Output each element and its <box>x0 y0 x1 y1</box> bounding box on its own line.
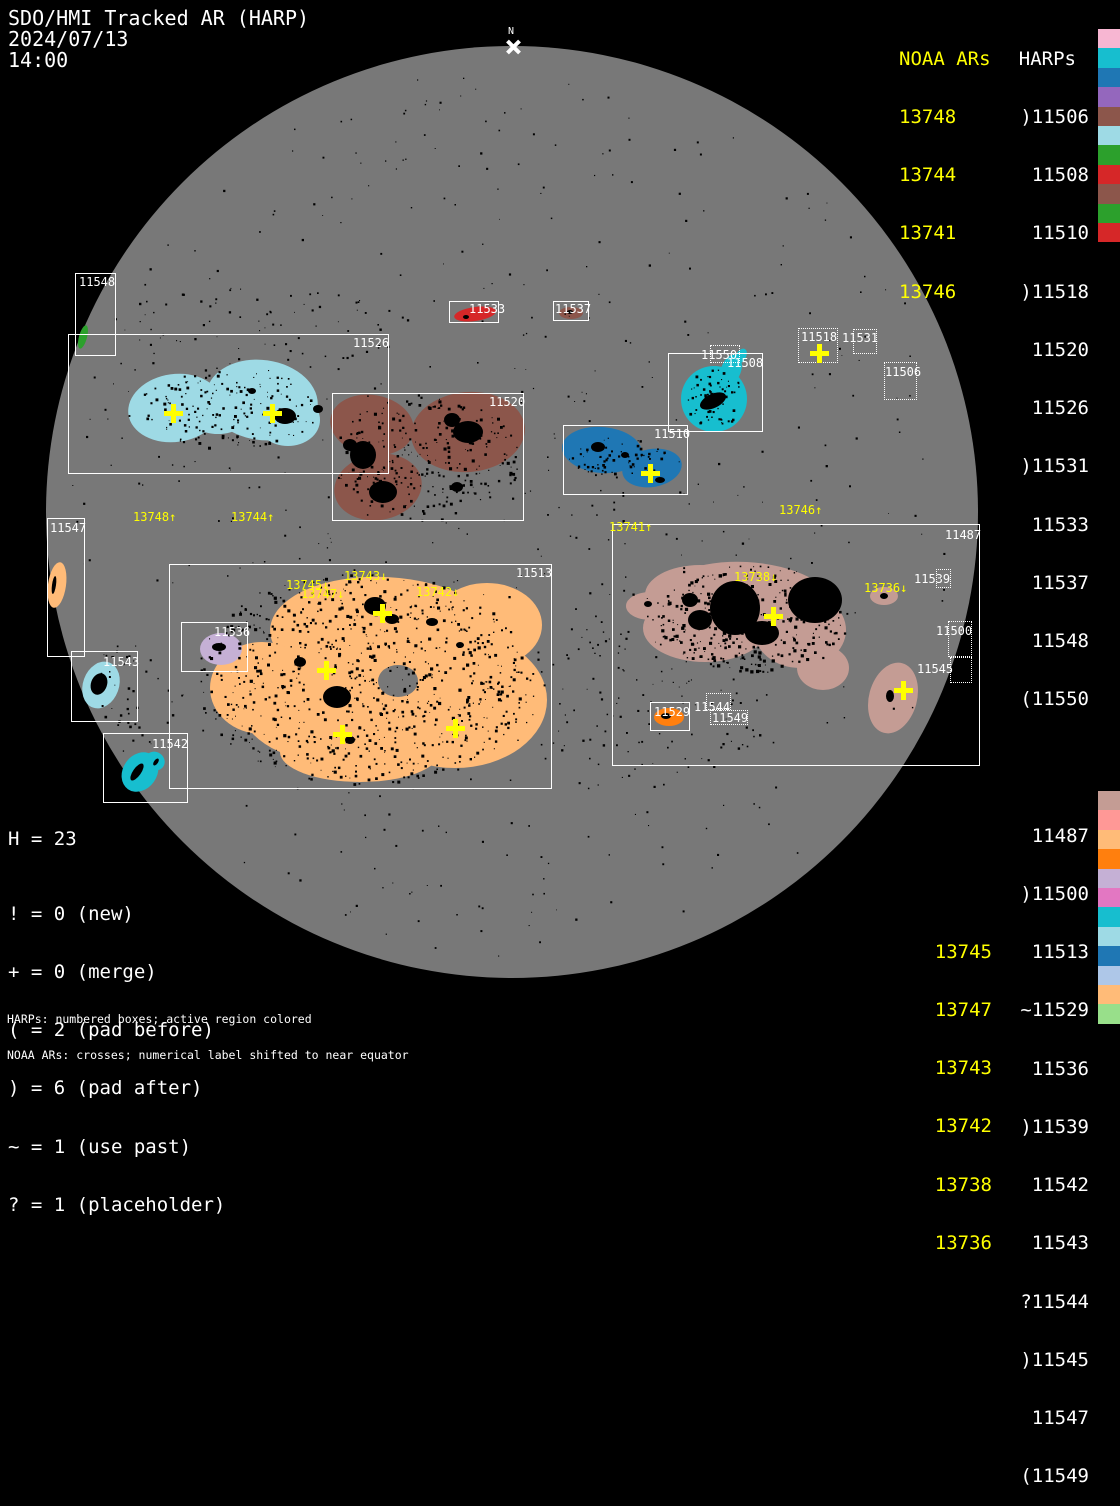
color-swatch <box>1098 946 1120 965</box>
harp-box-label: 11547 <box>50 522 86 534</box>
noaa-cross-icon <box>333 725 352 744</box>
legend-harp-item: 11543 <box>993 1234 1089 1253</box>
legend-harp-item: )11500 <box>993 885 1089 904</box>
noaa-cross-icon <box>317 661 336 680</box>
legend-noaa-item: 13738 <box>899 1176 992 1195</box>
footnote-noaa: NOAA ARs: crosses; numerical label shift… <box>7 1049 409 1061</box>
noaa-cross-icon <box>373 604 392 623</box>
color-swatch <box>1098 48 1120 67</box>
harp-box-11520 <box>332 393 524 521</box>
legend-noaa-title: NOAA ARs <box>899 50 991 69</box>
noaa-cross-icon <box>446 719 465 738</box>
legend-harp-item: (11550 <box>993 690 1089 709</box>
legend-noaa-item: 13743 <box>899 1059 992 1078</box>
noaa-cross-icon <box>894 681 913 700</box>
legend-harp-item: 11547 <box>993 1409 1089 1428</box>
harp-count: H = 23 <box>8 830 77 849</box>
harp-box-11487 <box>612 524 980 766</box>
color-swatch <box>1098 907 1120 926</box>
legend-harp-title: HARPs <box>993 50 1089 69</box>
legend-harp-item: 11510 <box>993 224 1089 243</box>
legend-noaa-item: 13746 <box>899 283 991 302</box>
legend-harp-bottom: 11487 )11500 11513 ~11529 11536 )11539 1… <box>993 788 1089 1506</box>
harp-box-label: 11500 <box>936 625 972 637</box>
legend-noaa-item: 13744 <box>899 166 991 185</box>
harp-box-label: 11545 <box>917 663 953 675</box>
legend-harp-item: 11537 <box>993 574 1089 593</box>
legend-harp-item: )11518 <box>993 283 1089 302</box>
color-swatch <box>1098 145 1120 164</box>
noaa-ar-label: 13743↓ <box>344 570 387 582</box>
color-swatch <box>1098 68 1120 87</box>
color-swatch <box>1098 126 1120 145</box>
harp-box-label: 11531 <box>842 332 878 344</box>
legend-harp-item: 11526 <box>993 399 1089 418</box>
legend-harp-top: HARPs )11506 11508 11510 )11518 11520 11… <box>993 11 1089 729</box>
legend-harp-item: )11531 <box>993 457 1089 476</box>
status-line-use-past: ~ = 1 (use past) <box>8 1138 225 1157</box>
legend-noaa-top: NOAA ARs 13748 13744 13741 13746 <box>899 11 991 322</box>
color-swatch <box>1098 223 1120 242</box>
harp-box-label: 11513 <box>516 567 552 579</box>
noaa-cross-icon <box>764 607 783 626</box>
noaa-ar-label: 13747↓ <box>301 588 344 600</box>
noaa-cross-icon <box>263 404 282 423</box>
harp-box-label: 11533 <box>469 303 505 315</box>
noaa-cross-icon <box>641 464 660 483</box>
color-swatch <box>1098 966 1120 985</box>
legend-harp-item: 11536 <box>993 1060 1089 1079</box>
legend-harp-item: )11545 <box>993 1351 1089 1370</box>
harp-box-label: 11539 <box>914 573 950 585</box>
noaa-ar-label: 13744↑ <box>231 511 274 523</box>
color-swatch <box>1098 888 1120 907</box>
harp-box-11545 <box>950 657 972 683</box>
color-swatch <box>1098 87 1120 106</box>
legend-noaa-item: 13748 <box>899 108 991 127</box>
legend-harp-item: 11487 <box>993 827 1089 846</box>
color-swatch <box>1098 165 1120 184</box>
legend-noaa-item: 13736 <box>899 1234 992 1253</box>
noaa-ar-label: 13746↑ <box>779 504 822 516</box>
harp-box-label: 11518 <box>801 331 837 343</box>
harp-box-label: 11549 <box>712 712 748 724</box>
noaa-ar-label: 13741↑ <box>609 521 652 533</box>
legend-harp-item: )11506 <box>993 108 1089 127</box>
color-swatch <box>1098 791 1120 810</box>
legend-harp-item: )11539 <box>993 1118 1089 1137</box>
legend-noaa-item: 13745 <box>899 943 992 962</box>
harp-box-label: 11526 <box>353 337 389 349</box>
harp-box-label: 11529 <box>654 706 690 718</box>
harp-box-label: 11520 <box>489 396 525 408</box>
legend-harp-item: ~11529 <box>993 1001 1089 1020</box>
color-swatch <box>1098 985 1120 1004</box>
legend-noaa-item: 13742 <box>899 1117 992 1136</box>
harp-box-11547 <box>47 518 85 657</box>
footnote-harps: HARPs: numbered boxes; active region col… <box>7 1013 409 1025</box>
status-line-new: ! = 0 (new) <box>8 905 225 924</box>
color-swatch <box>1098 869 1120 888</box>
legend-harp-item: 11548 <box>993 632 1089 651</box>
noaa-ar-label: 13748↑ <box>133 511 176 523</box>
legend-swatches-bottom <box>1098 791 1120 1024</box>
harp-box-label: 11506 <box>885 366 921 378</box>
color-swatch <box>1098 29 1120 48</box>
noaa-ar-label: 13738↓ <box>734 571 777 583</box>
legend-harp-item: (11549 <box>993 1467 1089 1486</box>
plot-time: 14:00 <box>8 48 68 72</box>
harp-box-label: 11543 <box>103 656 139 668</box>
legend-noaa-item: 13747 <box>899 1001 992 1020</box>
harp-box-label: 11536 <box>214 626 250 638</box>
noaa-cross-icon <box>810 344 829 363</box>
harp-box-label: 11487 <box>945 529 981 541</box>
color-swatch <box>1098 1004 1120 1023</box>
legend-harp-item: 11542 <box>993 1176 1089 1195</box>
color-swatch <box>1098 184 1120 203</box>
legend-harp-item: ?11544 <box>993 1293 1089 1312</box>
status-line-pad-after: ) = 6 (pad after) <box>8 1079 225 1098</box>
color-swatch <box>1098 810 1120 829</box>
legend-swatches-top <box>1098 29 1120 242</box>
color-swatch <box>1098 204 1120 223</box>
noaa-ar-label: 13736↓ <box>864 582 907 594</box>
color-swatch <box>1098 927 1120 946</box>
legend-noaa-bottom: 13745 13747 13743 13742 13738 13736 <box>899 904 992 1273</box>
harp-box-label: 11550 <box>701 349 737 361</box>
color-swatch <box>1098 849 1120 868</box>
harp-box-11513 <box>169 564 552 789</box>
color-swatch <box>1098 830 1120 849</box>
footnotes: HARPs: numbered boxes; active region col… <box>7 989 409 1073</box>
harp-box-label: 11537 <box>555 303 591 315</box>
legend-harp-item: 11508 <box>993 166 1089 185</box>
harp-tracker-screen: { "header": {"title": "SDO/HMI Tracked A… <box>0 0 1120 1024</box>
legend-noaa-item: 13741 <box>899 224 991 243</box>
harp-box-label: 11542 <box>152 738 188 750</box>
noaa-ar-label: 13742↓ <box>416 586 459 598</box>
plot-title-block: SDO/HMI Tracked AR (HARP)2024/07/1314:00 <box>8 8 309 71</box>
harp-box-label: 11510 <box>654 428 690 440</box>
legend-harp-item: 11533 <box>993 516 1089 535</box>
color-swatch <box>1098 107 1120 126</box>
status-line-merge: + = 0 (merge) <box>8 963 225 982</box>
legend-harp-item: 11513 <box>993 943 1089 962</box>
noaa-cross-icon <box>164 404 183 423</box>
status-line-placeholder: ? = 1 (placeholder) <box>8 1196 225 1215</box>
harp-box-label: 11548 <box>79 276 115 288</box>
legend-harp-item: 11520 <box>993 341 1089 360</box>
